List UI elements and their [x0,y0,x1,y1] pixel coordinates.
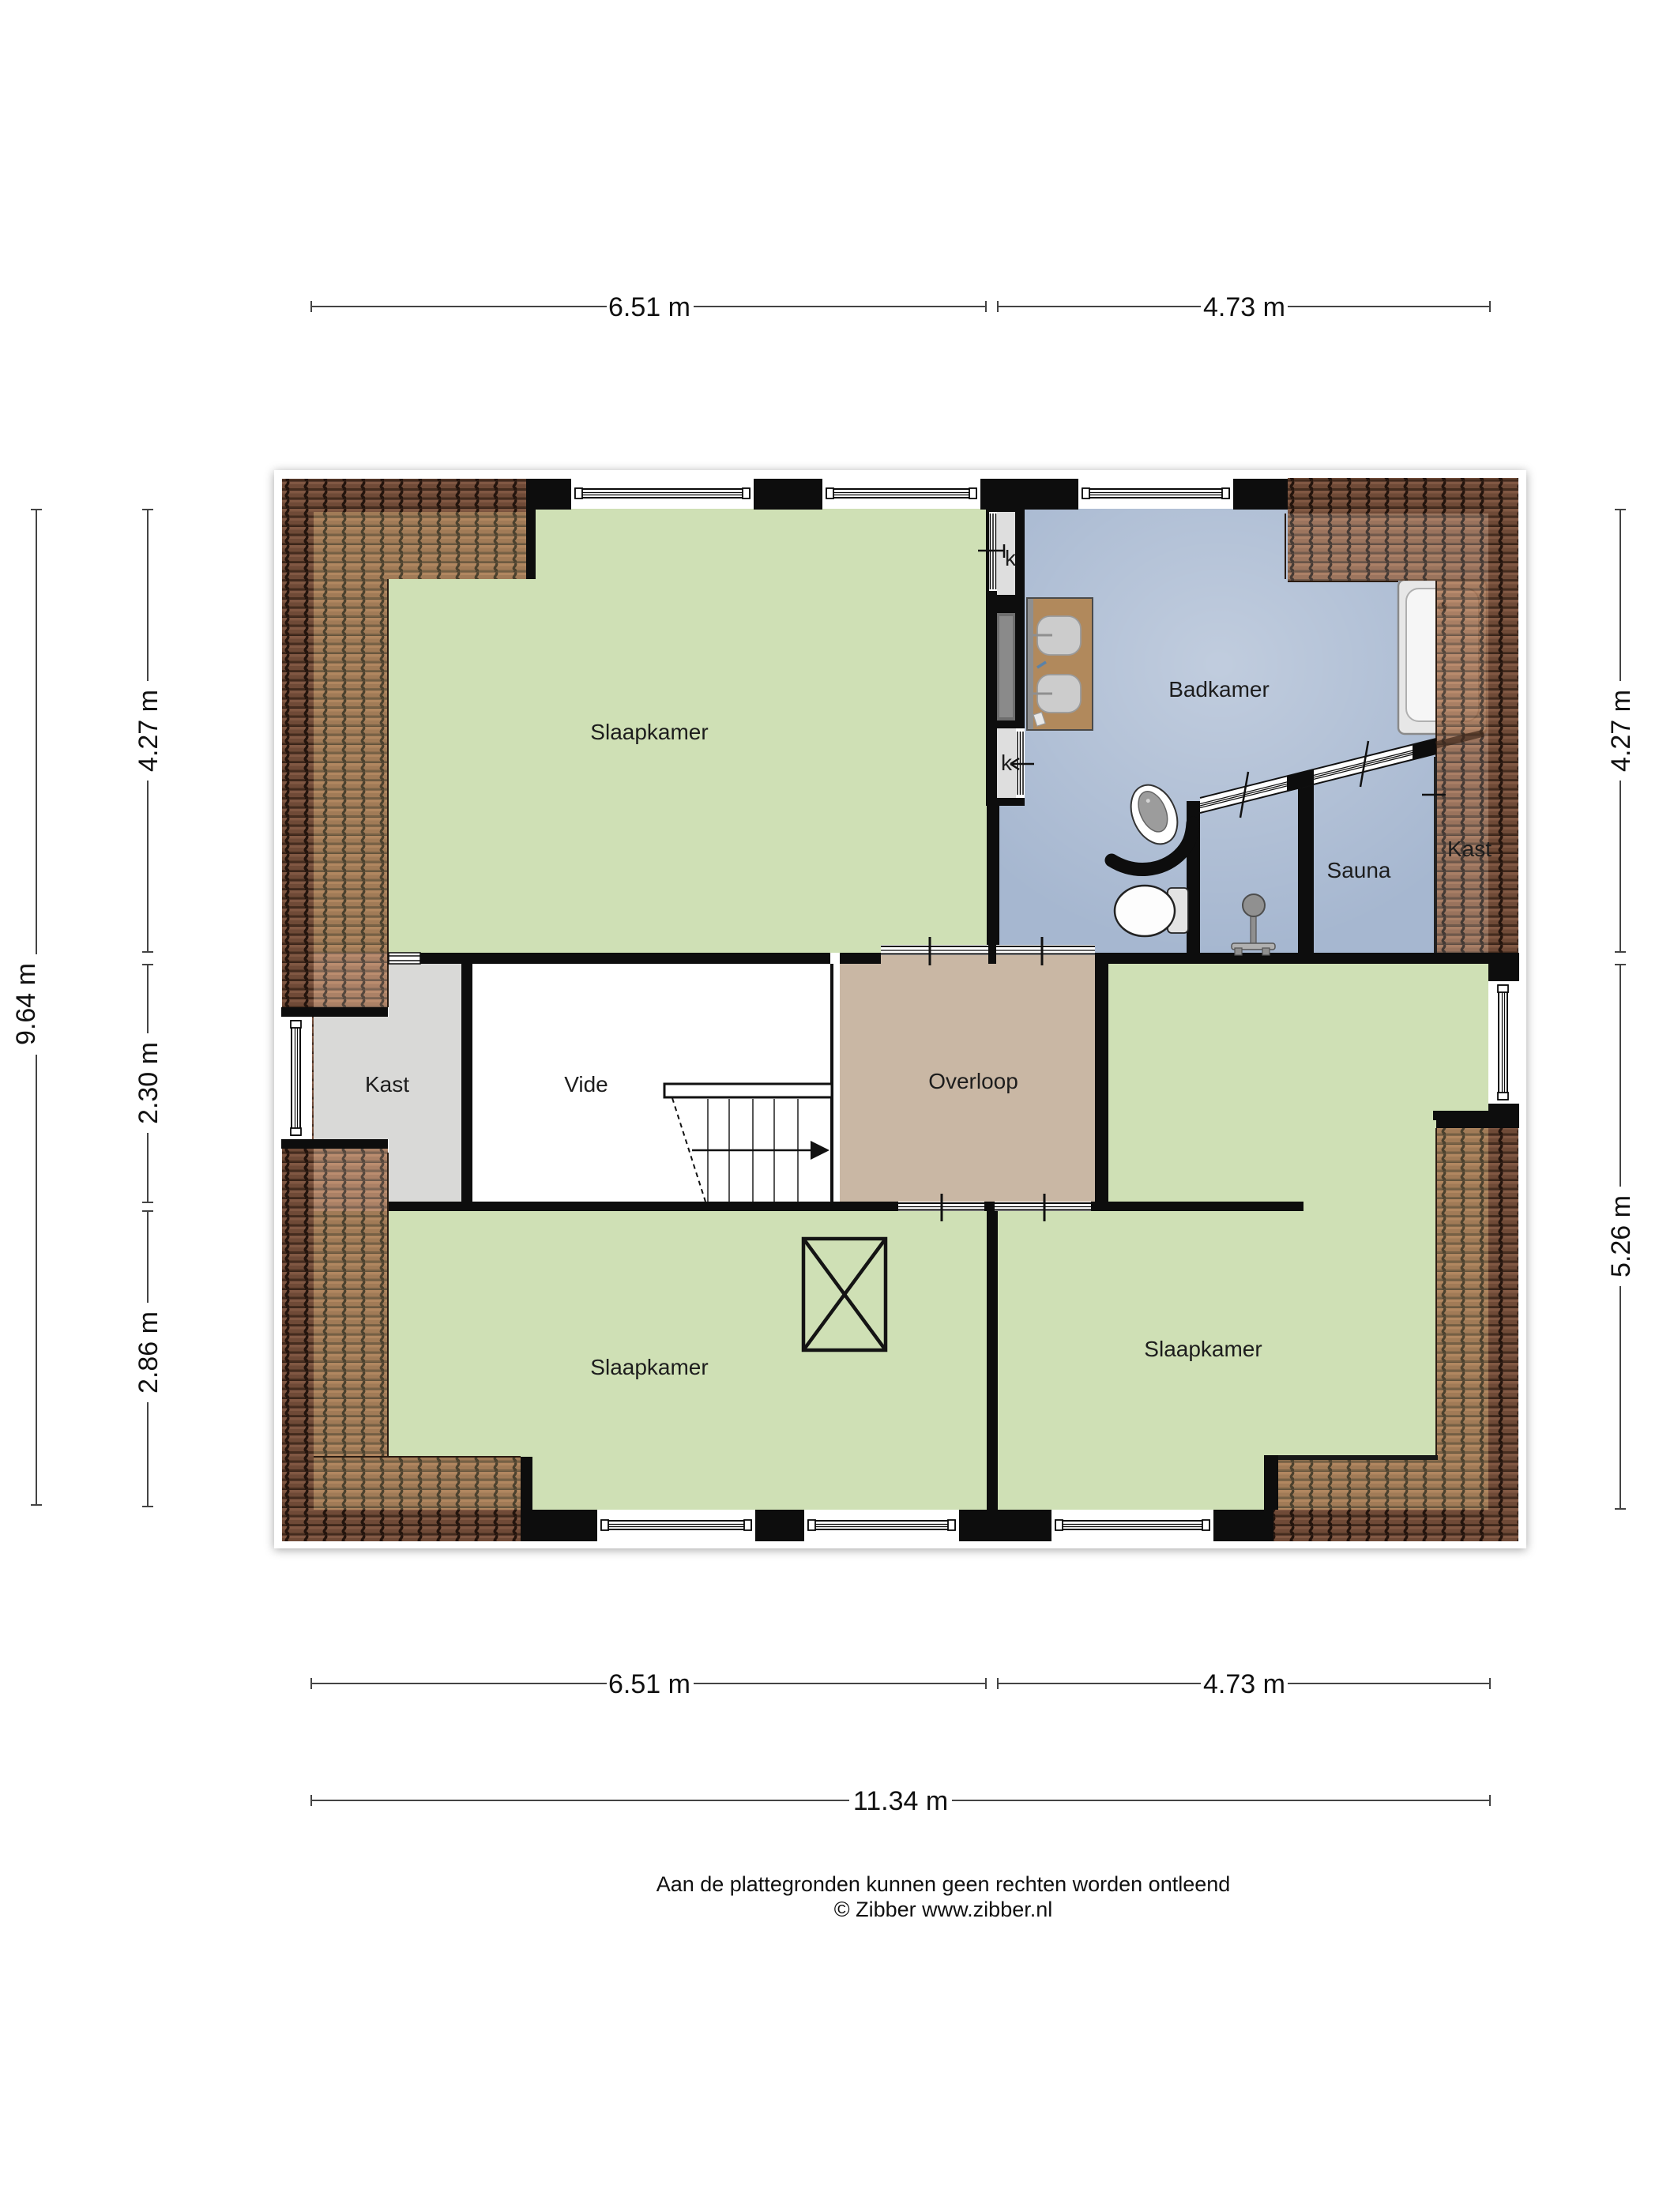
svg-text:2.30 m: 2.30 m [134,1042,164,1124]
svg-text:Slaapkamer: Slaapkamer [590,720,708,744]
svg-text:4.27 m: 4.27 m [1606,690,1636,772]
svg-text:Vide: Vide [564,1072,608,1097]
svg-text:Aan de plattegronden kunnen ge: Aan de plattegronden kunnen geen rechten… [656,1872,1231,1896]
svg-text:4.73 m: 4.73 m [1203,1669,1285,1699]
svg-text:Slaapkamer: Slaapkamer [1144,1337,1262,1361]
svg-text:6.51 m: 6.51 m [608,292,690,322]
svg-text:k: k [1001,750,1013,775]
svg-text:4.27 m: 4.27 m [134,690,164,772]
svg-text:2.86 m: 2.86 m [134,1311,164,1394]
svg-text:Kast: Kast [1447,837,1492,861]
svg-text:Sauna: Sauna [1327,858,1391,882]
svg-text:Kast: Kast [365,1072,409,1097]
svg-text:Slaapkamer: Slaapkamer [590,1355,708,1379]
svg-text:9.64 m: 9.64 m [11,963,41,1045]
svg-text:Overloop: Overloop [928,1069,1018,1093]
svg-text:4.73 m: 4.73 m [1203,292,1285,322]
svg-text:k: k [1005,546,1017,570]
svg-text:Badkamer: Badkamer [1168,677,1270,702]
svg-text:© Zibber www.zibber.nl: © Zibber www.zibber.nl [834,1898,1053,1921]
svg-text:6.51 m: 6.51 m [608,1669,690,1699]
svg-text:5.26 m: 5.26 m [1606,1195,1636,1277]
svg-text:11.34 m: 11.34 m [853,1786,948,1816]
